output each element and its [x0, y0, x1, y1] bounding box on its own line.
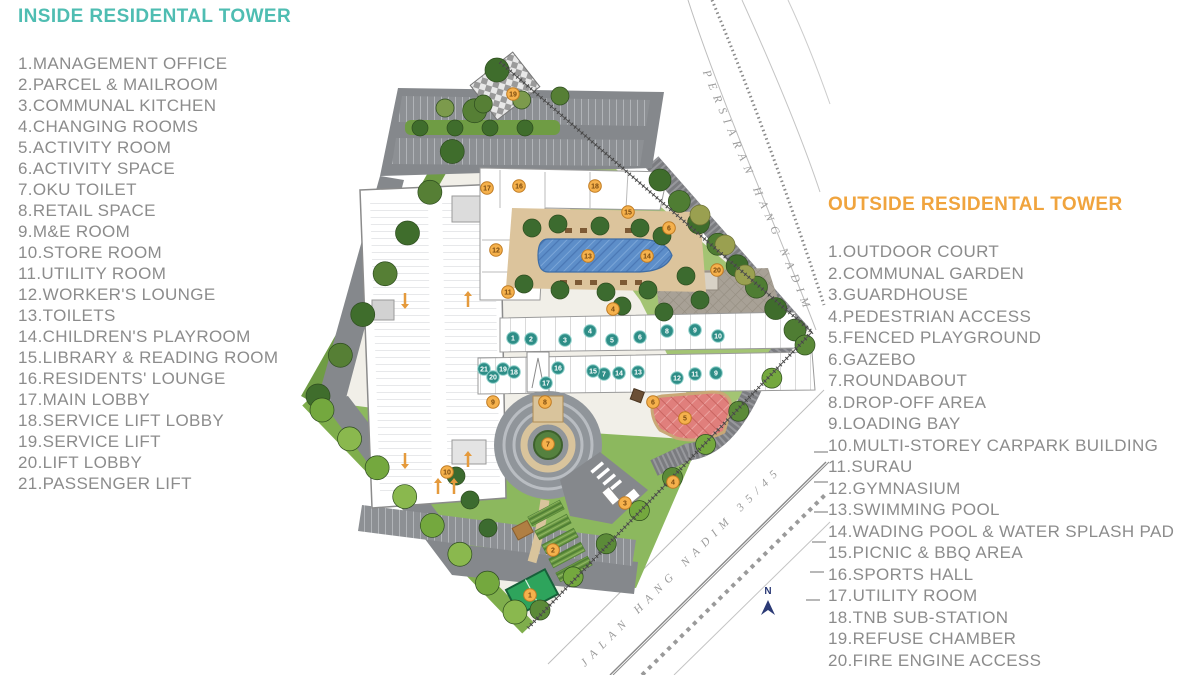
marker-outside-18: 18 [589, 180, 602, 193]
legend-inside-residential-tower: INSIDE RESIDENTAL TOWER 1.MANAGEMENT OFF… [18, 6, 291, 494]
svg-text:12: 12 [492, 248, 500, 255]
legend-item: 20.FIRE ENGINE ACCESS [828, 650, 1174, 672]
svg-text:7: 7 [546, 442, 550, 449]
legend-item: 1.MANAGEMENT OFFICE [18, 53, 291, 74]
marker-inside-8: 8 [661, 325, 674, 338]
marker-outside-10: 10 [441, 466, 454, 479]
svg-text:13: 13 [634, 370, 642, 377]
svg-text:6: 6 [638, 335, 642, 342]
bush-icon [639, 281, 657, 299]
svg-text:18: 18 [510, 370, 518, 377]
svg-text:7: 7 [602, 372, 606, 379]
svg-text:12: 12 [673, 376, 681, 383]
svg-text:9: 9 [693, 328, 697, 335]
marker-inside-17: 17 [540, 377, 553, 390]
marker-outside-4: 4 [667, 476, 680, 489]
bush-icon [597, 283, 615, 301]
tree-icon [668, 190, 690, 212]
legend-item: 2.COMMUNAL GARDEN [828, 263, 1174, 285]
svg-text:19: 19 [499, 367, 507, 374]
tree-icon [351, 303, 375, 327]
svg-text:3: 3 [563, 338, 567, 345]
marker-outside-4: 4 [607, 303, 620, 316]
svg-text:16: 16 [554, 366, 562, 373]
legend-item: 14.WADING POOL & WATER SPLASH PAD [828, 521, 1174, 543]
legend-item: 18.SERVICE LIFT LOBBY [18, 410, 291, 431]
svg-text:8: 8 [543, 400, 547, 407]
marker-inside-9: 9 [710, 367, 723, 380]
legend-item: 9.M&E ROOM [18, 221, 291, 242]
marker-outside-14: 14 [641, 250, 654, 263]
marker-outside-3: 3 [619, 497, 632, 510]
marker-outside-15: 15 [622, 206, 635, 219]
legend-item: 17.UTILITY ROOM [828, 585, 1174, 607]
bush-icon [677, 267, 695, 285]
marker-inside-18: 18 [508, 366, 521, 379]
tree-icon [503, 600, 527, 624]
svg-text:4: 4 [611, 307, 615, 314]
bush-icon [691, 291, 709, 309]
legend-inside-title: INSIDE RESIDENTAL TOWER [18, 6, 291, 28]
svg-text:20: 20 [713, 268, 721, 275]
tree-icon [338, 427, 362, 451]
marker-outside-11: 11 [502, 286, 515, 299]
marker-inside-2: 2 [525, 333, 538, 346]
tree-icon [563, 567, 583, 587]
tree-icon [596, 534, 616, 554]
bush-icon [479, 519, 497, 537]
legend-item: 14.CHILDREN'S PLAYROOM [18, 326, 291, 347]
marker-outside-1: 1 [524, 589, 537, 602]
legend-item: 1.OUTDOOR COURT [828, 241, 1174, 263]
marker-outside-5: 5 [679, 412, 692, 425]
legend-item: 15.LIBRARY & READING ROOM [18, 347, 291, 368]
bush-icon [523, 219, 541, 237]
legend-item: 8.DROP-OFF AREA [828, 392, 1174, 414]
tree-icon [517, 120, 533, 136]
bush-icon [655, 303, 673, 321]
svg-text:8: 8 [665, 329, 669, 336]
north-label: N [764, 586, 771, 597]
marker-inside-5: 5 [606, 334, 619, 347]
tree-icon [530, 600, 550, 620]
tree-icon [475, 571, 499, 595]
legend-item: 10.STORE ROOM [18, 242, 291, 263]
svg-text:1: 1 [528, 593, 532, 600]
marker-inside-9: 9 [689, 324, 702, 337]
bush-icon [549, 215, 567, 233]
tree-icon [440, 140, 464, 164]
tree-icon [482, 120, 498, 136]
legend-item: 18.TNB SUB-STATION [828, 607, 1174, 629]
tree-icon [420, 513, 444, 537]
lounger-icon [620, 280, 627, 285]
marker-inside-6: 6 [634, 331, 647, 344]
legend-item: 19.REFUSE CHAMBER [828, 628, 1174, 650]
marker-inside-4: 4 [584, 325, 597, 338]
legend-item: 13.TOILETS [18, 305, 291, 326]
svg-text:11: 11 [504, 290, 512, 297]
marker-outside-12: 12 [490, 244, 503, 257]
tree-icon [365, 456, 389, 480]
legend-item: 15.PICNIC & BBQ AREA [828, 542, 1174, 564]
marker-inside-16: 16 [552, 362, 565, 375]
lounger-icon [575, 280, 582, 285]
legend-item: 13.SWIMMING POOL [828, 499, 1174, 521]
tree-icon [551, 87, 569, 105]
svg-text:20: 20 [489, 375, 497, 382]
svg-text:19: 19 [509, 92, 517, 99]
svg-text:13: 13 [584, 254, 592, 261]
tree-icon [396, 221, 420, 245]
svg-text:17: 17 [542, 381, 550, 388]
tree-icon [649, 169, 671, 191]
legend-item: 11.UTILITY ROOM [18, 263, 291, 284]
bush-icon [591, 217, 609, 235]
svg-text:6: 6 [651, 400, 655, 407]
svg-text:9: 9 [714, 371, 718, 378]
legend-item: 16.RESIDENTS' LOUNGE [18, 368, 291, 389]
marker-outside-20: 20 [711, 264, 724, 277]
svg-text:16: 16 [515, 184, 523, 191]
legend-item: 4.PEDESTRIAN ACCESS [828, 306, 1174, 328]
bush-icon [551, 281, 569, 299]
tree-icon [373, 262, 397, 286]
marker-inside-14: 14 [613, 367, 626, 380]
legend-item: 2.PARCEL & MAILROOM [18, 74, 291, 95]
marker-inside-15: 15 [587, 365, 600, 378]
tree-icon [762, 368, 782, 388]
svg-text:14: 14 [643, 254, 651, 261]
legend-outside-list: 1.OUTDOOR COURT2.COMMUNAL GARDEN3.GUARDH… [828, 241, 1174, 671]
legend-item: 20.LIFT LOBBY [18, 452, 291, 473]
marker-inside-12: 12 [671, 372, 684, 385]
legend-item: 7.ROUNDABOUT [828, 370, 1174, 392]
marker-outside-9: 9 [487, 396, 500, 409]
marker-inside-11: 11 [689, 368, 702, 381]
legend-item: 16.SPORTS HALL [828, 564, 1174, 586]
marker-outside-6: 6 [663, 222, 676, 235]
legend-item: 5.FENCED PLAYGROUND [828, 327, 1174, 349]
north-arrow: N [761, 586, 775, 615]
legend-item: 9.LOADING BAY [828, 413, 1174, 435]
marker-outside-8: 8 [539, 396, 552, 409]
legend-item: 5.ACTIVITY ROOM [18, 137, 291, 158]
legend-item: 8.RETAIL SPACE [18, 200, 291, 221]
tree-icon [448, 542, 472, 566]
tree-icon [436, 99, 454, 117]
legend-item: 17.MAIN LOBBY [18, 389, 291, 410]
legend-item: 7.OKU TOILET [18, 179, 291, 200]
bush-icon [461, 491, 479, 509]
marker-inside-13: 13 [632, 366, 645, 379]
svg-text:15: 15 [589, 369, 597, 376]
marker-inside-1: 1 [507, 332, 520, 345]
svg-text:2: 2 [551, 548, 555, 555]
svg-text:1: 1 [511, 336, 515, 343]
svg-text:14: 14 [615, 371, 623, 378]
marker-outside-19: 19 [507, 88, 520, 101]
tree-icon [412, 120, 428, 136]
svg-text:5: 5 [610, 338, 614, 345]
legend-item: 3.GUARDHOUSE [828, 284, 1174, 306]
svg-text:10: 10 [714, 334, 722, 341]
legend-item: 12.WORKER'S LOUNGE [18, 284, 291, 305]
tree-icon [474, 95, 492, 113]
tree-icon [715, 235, 735, 255]
tree-icon [690, 205, 710, 225]
marker-outside-6: 6 [647, 396, 660, 409]
tree-icon [328, 343, 352, 367]
legend-outside-title: OUTSIDE RESIDENTAL TOWER [828, 194, 1174, 216]
north-arrow-icon [761, 600, 775, 615]
marker-outside-16: 16 [513, 180, 526, 193]
svg-text:21: 21 [480, 367, 488, 374]
svg-text:10: 10 [443, 470, 451, 477]
svg-text:4: 4 [588, 329, 592, 336]
tree-icon [447, 120, 463, 136]
legend-item: 6.ACTIVITY SPACE [18, 158, 291, 179]
tree-icon [418, 180, 442, 204]
legend-item: 11.SURAU [828, 456, 1174, 478]
legend-item: 19.SERVICE LIFT [18, 431, 291, 452]
legend-item: 12.GYMNASIUM [828, 478, 1174, 500]
marker-outside-13: 13 [582, 250, 595, 263]
svg-text:5: 5 [683, 416, 687, 423]
tree-icon [393, 485, 417, 509]
legend-item: 21.PASSENGER LIFT [18, 473, 291, 494]
legend-item: 6.GAZEBO [828, 349, 1174, 371]
svg-text:4: 4 [671, 480, 675, 487]
lounger-icon [590, 280, 597, 285]
svg-text:9: 9 [491, 400, 495, 407]
svg-text:17: 17 [483, 186, 491, 193]
tree-icon [310, 398, 334, 422]
marker-inside-3: 3 [559, 334, 572, 347]
legend-item: 3.COMMUNAL KITCHEN [18, 95, 291, 116]
marker-outside-2: 2 [547, 544, 560, 557]
svg-text:2: 2 [529, 337, 533, 344]
tree-icon [485, 58, 509, 82]
svg-text:3: 3 [623, 501, 627, 508]
bush-icon [631, 219, 649, 237]
marker-inside-10: 10 [712, 330, 725, 343]
lounger-icon [580, 228, 587, 233]
legend-item: 10.MULTI-STOREY CARPARK BUILDING [828, 435, 1174, 457]
svg-text:18: 18 [591, 184, 599, 191]
legend-item: 4.CHANGING ROOMS [18, 116, 291, 137]
svg-text:15: 15 [624, 210, 632, 217]
legend-inside-list: 1.MANAGEMENT OFFICE2.PARCEL & MAILROOM3.… [18, 53, 291, 494]
marker-outside-17: 17 [481, 182, 494, 195]
marker-outside-7: 7 [542, 438, 555, 451]
legend-outside-residential-tower: OUTSIDE RESIDENTAL TOWER 1.OUTDOOR COURT… [828, 194, 1174, 671]
svg-text:6: 6 [667, 226, 671, 233]
bush-icon [515, 275, 533, 293]
svg-text:11: 11 [691, 372, 699, 379]
